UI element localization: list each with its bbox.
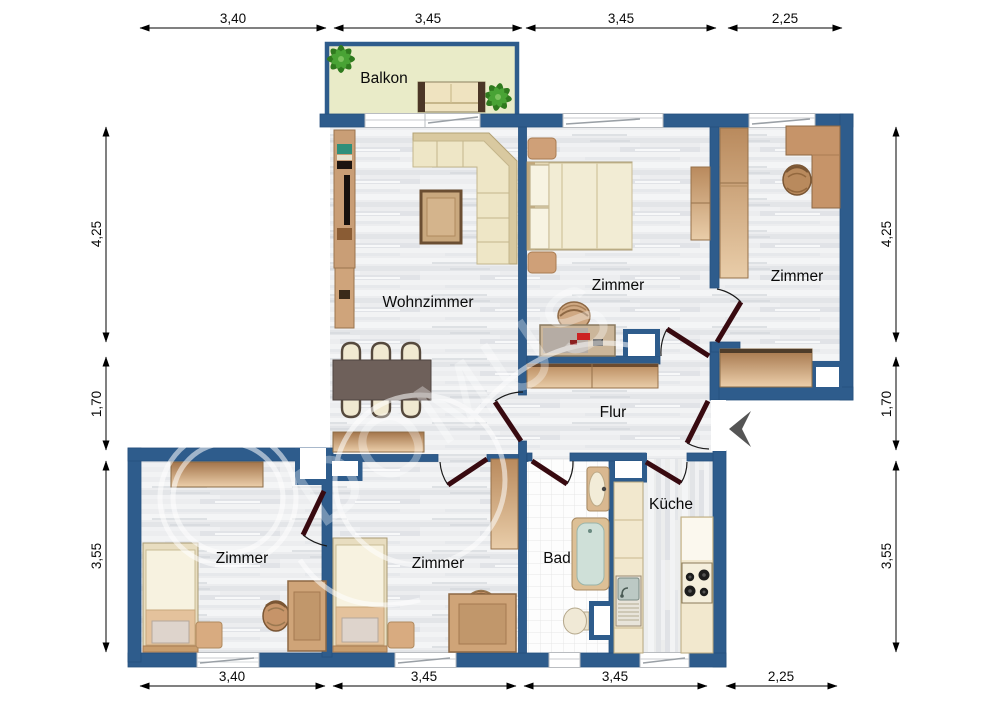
svg-text:Küche: Küche — [649, 496, 693, 513]
svg-text:3,45: 3,45 — [415, 11, 441, 26]
svg-text:Zimmer: Zimmer — [771, 268, 824, 285]
svg-text:Zimmer: Zimmer — [216, 550, 269, 567]
svg-text:4,25: 4,25 — [89, 221, 104, 247]
svg-text:3,55: 3,55 — [89, 543, 104, 569]
svg-text:2,25: 2,25 — [772, 11, 798, 26]
svg-text:1,70: 1,70 — [89, 391, 104, 417]
svg-text:Zimmer: Zimmer — [412, 555, 465, 572]
svg-text:Flur: Flur — [600, 404, 627, 421]
svg-text:3,45: 3,45 — [608, 11, 634, 26]
svg-text:Balkon: Balkon — [360, 70, 407, 87]
svg-text:Wohnzimmer: Wohnzimmer — [382, 294, 473, 311]
svg-text:3,40: 3,40 — [220, 11, 246, 26]
svg-text:3,45: 3,45 — [411, 669, 437, 684]
svg-text:Zimmer: Zimmer — [592, 277, 645, 294]
svg-text:4,25: 4,25 — [879, 221, 894, 247]
svg-text:3,40: 3,40 — [219, 669, 245, 684]
svg-text:Bad: Bad — [543, 550, 571, 567]
svg-text:3,55: 3,55 — [879, 543, 894, 569]
svg-text:3,45: 3,45 — [602, 669, 628, 684]
svg-text:2,25: 2,25 — [768, 669, 794, 684]
svg-text:1,70: 1,70 — [879, 391, 894, 417]
